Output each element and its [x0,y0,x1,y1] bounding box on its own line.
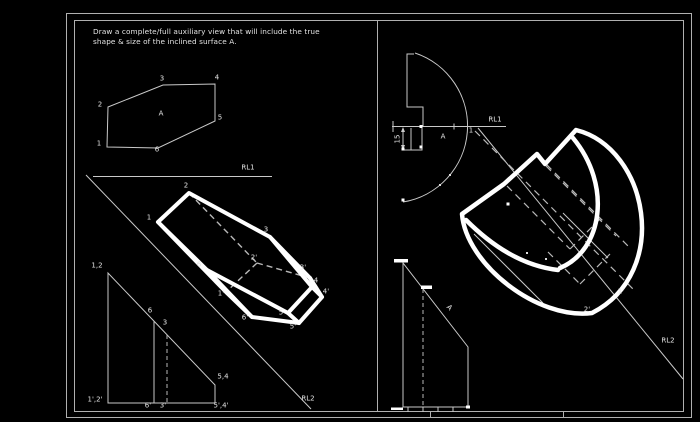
vertex-label: 1',2' [88,397,103,404]
dimension-15-label: 15 [395,135,402,144]
arc-tick [439,184,441,186]
vertex-label: 1 [469,128,473,135]
vertex-label: 1,2 [91,263,102,270]
point-marker [420,125,423,128]
drawing-sheet: Draw a complete/full auxiliary view that… [0,0,700,422]
vertex-label: 3 [163,320,167,327]
vertex-label: 3 [160,76,164,83]
surface-a-label: A [159,111,164,118]
vertex-label: 2' [584,307,590,314]
hidden-notch-edge [546,166,616,236]
instruction-line-2: shape & size of the inclined surface A. [93,37,329,47]
aux-crescent-arc [466,220,558,270]
aux-view-true-shape [158,193,322,323]
arc-tick [526,252,528,254]
vertex-label: 1 [97,141,101,148]
rl2-label-right: RL2 [661,338,674,345]
vertex-label: 6 [197,262,201,269]
arc-tick [545,258,547,260]
surface-a-label: A [441,134,446,141]
rl2-line [86,175,311,409]
aux-view-hidden-edges [189,193,310,292]
vertex-label: 4 [215,75,219,82]
vertex-label: 3' [160,403,166,410]
drawing-canvas [0,0,700,422]
vertex-label: 5 [279,310,283,317]
plan-point-markers [402,125,423,202]
rl1-label-right: RL1 [488,117,501,124]
vertex-label: 1 [147,215,151,222]
plan-arc [403,53,468,202]
hidden-edge-2-2p [189,193,257,263]
vertex-label: 6 [155,147,159,154]
rl1-label-left: RL1 [241,165,254,172]
thin-construction-lines [474,213,608,303]
rl2-label-left: RL2 [301,396,314,403]
vertex-label: 5' [290,324,296,331]
vertex-label: 5',4' [214,403,229,410]
aux-top-face-hexagon [158,193,312,313]
instruction-line-1: Draw a complete/full auxiliary view that… [93,27,329,37]
point-marker [402,148,405,151]
aux-inner-arc [560,138,598,268]
construction-line [474,234,543,303]
instruction-text: Draw a complete/full auxiliary view that… [93,27,329,46]
vertex-label: 1' [218,291,224,298]
point-marker [402,199,405,202]
vertex-label: 4 [314,278,318,285]
base-marker [391,408,403,411]
plan-view [392,53,506,202]
vertex-label: 3' [300,265,306,272]
point-marker [507,203,510,206]
edge-marker [421,286,432,290]
vertex-label: 6' [242,315,248,322]
vertex-label: 1' [618,289,624,296]
plan-stepped-edge [407,54,423,126]
aux-outer-outline [462,130,642,314]
vertex-label: 6 [148,308,152,315]
vertex-label: 2 [184,183,188,190]
vertex-label: 4' [323,289,329,296]
aux-lateral-edge-6 [207,270,252,317]
left-problem-panel [86,84,322,409]
base-marker [466,406,470,409]
point-marker [420,146,423,149]
aux-view-answer-shape [462,130,642,314]
right-problem-panel [391,53,683,412]
vertex-label: 5,4 [217,374,228,381]
hidden-notch-edge [507,186,570,249]
vertex-label: 5 [218,115,222,122]
crescent-ticks [526,252,547,260]
vertex-label: 6' [145,403,151,410]
front-view-outline [403,263,468,407]
vertex-label: 2 [98,102,102,109]
edge-marker [394,259,408,263]
vertex-label: 2' [251,255,257,262]
vertex-label: 3 [264,227,268,234]
arc-tick [449,174,451,176]
dim-arrow-up [401,127,405,132]
